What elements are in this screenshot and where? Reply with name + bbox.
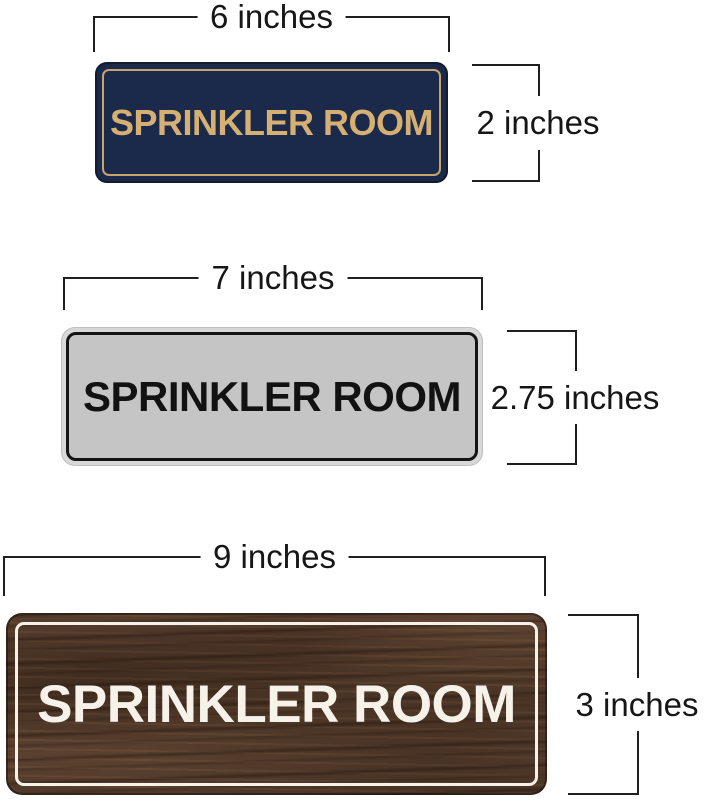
height-dimension: 3 inches <box>568 614 710 795</box>
height-dimension-label: 3 inches <box>570 678 705 732</box>
sign-walnut-wood: SPRINKLER ROOM <box>6 613 547 795</box>
product-dimension-diagram: 6 inches SPRINKLER ROOM 2 inches 7 inche… <box>0 0 722 805</box>
width-dimension-label: 9 inches <box>200 538 349 576</box>
height-dimension-label: 2.75 inches <box>485 371 666 425</box>
dimension-tick-top <box>568 614 639 616</box>
height-dimension-label: 2 inches <box>471 96 606 150</box>
sign-text: SPRINKLER ROOM <box>37 674 516 735</box>
width-dimension: 9 inches <box>3 556 546 596</box>
dimension-tick-bottom <box>568 793 639 795</box>
dimension-tick-right <box>544 556 546 596</box>
width-dimension-label: 7 inches <box>199 259 348 297</box>
dimension-tick-left <box>3 556 5 596</box>
width-dimension-label: 6 inches <box>197 0 346 36</box>
